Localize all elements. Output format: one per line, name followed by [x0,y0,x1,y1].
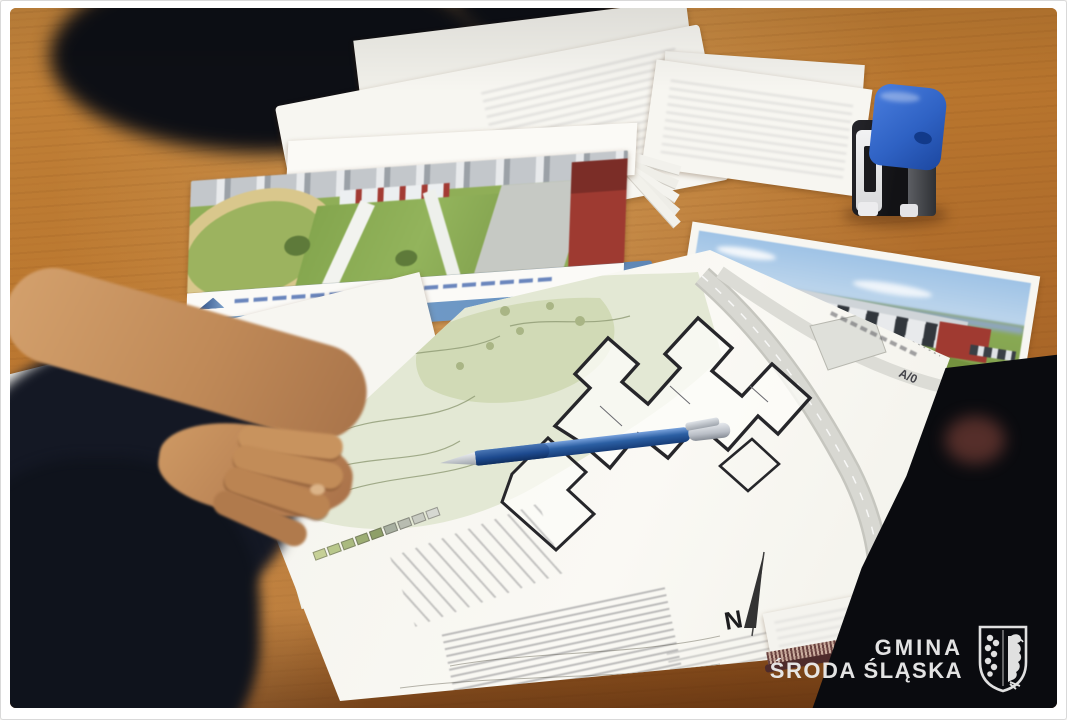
coat-of-arms-icon [977,624,1029,694]
framed-photograph: N A/0 [0,0,1067,720]
watermark: GMINA ŚRODA ŚLĄSKA [770,624,1029,694]
document-text-blur [661,76,853,179]
stamp-foot [900,204,918,217]
watermark-line2: ŚRODA ŚLĄSKA [770,659,963,682]
self-inking-stamp [838,86,953,231]
north-label: N [722,605,745,636]
rendering-red-building [568,158,628,267]
hand-hint [945,416,1005,464]
stamp-foot [858,202,878,216]
pen-tip [439,452,476,469]
watermark-text: GMINA ŚRODA ŚLĄSKA [770,636,963,682]
watermark-line1: GMINA [770,636,963,659]
person-hands-left [10,288,430,708]
photo-area: N A/0 [10,8,1057,708]
fingernail [310,484,325,495]
